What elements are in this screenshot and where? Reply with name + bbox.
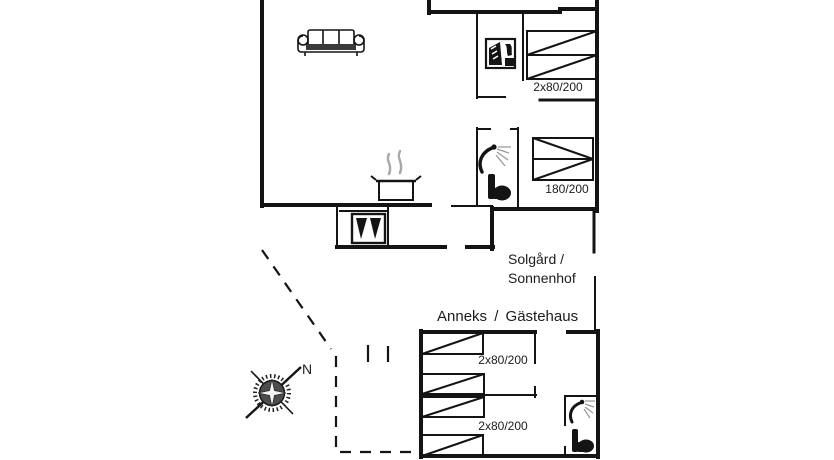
- floor-plan: 2x80/200 180/200 Solgård / Sonnenhof Ann…: [0, 0, 834, 460]
- toilet-icon: [572, 429, 594, 453]
- fireplace-stove-icon: [352, 214, 385, 243]
- main-bed-2x80-200: [527, 31, 597, 79]
- main-house-walls: [262, 0, 597, 249]
- boundary-dashed-line: [262, 250, 418, 452]
- main-bedroom2-bed-size-label: 180/200: [541, 182, 593, 196]
- main-bedroom1-bed-size-label: 2x80/200: [526, 80, 590, 94]
- annex-room1-bed-size-label: 2x80/200: [473, 353, 533, 367]
- main-house-name-line1: Solgård /: [508, 250, 564, 269]
- cooking-pot-icon: [371, 151, 421, 200]
- shower-icon: [570, 400, 595, 422]
- shower-icon: [480, 144, 511, 172]
- floor-plan-drawing: [0, 0, 834, 460]
- compass-rose-icon: [246, 367, 301, 418]
- connector-wall: [594, 211, 595, 332]
- gate-ticks: [368, 345, 388, 362]
- washing-machine-icon: [486, 39, 515, 68]
- main-house-name-line2: Sonnenhof: [508, 269, 576, 288]
- toilet-icon: [488, 174, 511, 201]
- annex-name-label: Anneks / Gästehaus: [437, 308, 578, 325]
- annex-beds: [422, 333, 484, 456]
- sofa-icon: [298, 30, 364, 56]
- compass-north-label: N: [302, 361, 312, 377]
- main-bed-180-200: [533, 138, 593, 180]
- annex-room2-bed-size-label: 2x80/200: [473, 419, 533, 433]
